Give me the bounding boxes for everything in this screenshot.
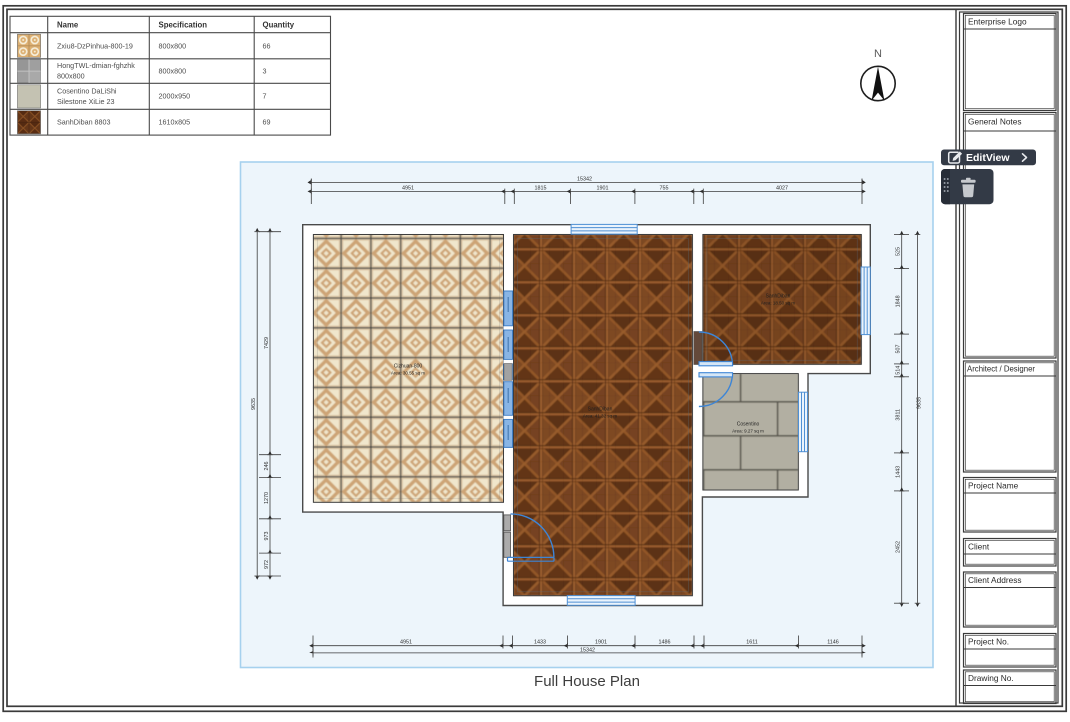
svg-text:9635: 9635 [917, 397, 923, 409]
svg-text:1815: 1815 [535, 185, 547, 191]
svg-text:800x800: 800x800 [57, 72, 85, 81]
svg-text:Drawing No.: Drawing No. [968, 673, 1014, 683]
svg-text:4951: 4951 [400, 640, 412, 646]
svg-text:2000x950: 2000x950 [159, 92, 191, 101]
svg-text:1848: 1848 [896, 295, 902, 307]
svg-text:Area: 41.32 sq m: Area: 41.32 sq m [583, 414, 618, 419]
svg-text:Architect / Designer: Architect / Designer [967, 365, 1035, 374]
svg-text:525: 525 [896, 247, 902, 256]
svg-text:Enterprise Logo: Enterprise Logo [968, 17, 1027, 27]
svg-text:Area: 9.27 sq m: Area: 9.27 sq m [732, 429, 764, 434]
svg-text:973: 973 [264, 532, 270, 541]
svg-text:1433: 1433 [534, 640, 546, 646]
svg-text:Project No.: Project No. [968, 637, 1009, 647]
svg-text:800x800: 800x800 [159, 42, 187, 51]
svg-text:1611: 1611 [746, 640, 758, 646]
svg-text:Area: 18.50 sq m: Area: 18.50 sq m [761, 301, 796, 306]
svg-text:SanhDiban: SanhDiban [766, 294, 791, 300]
svg-text:Specification: Specification [159, 20, 208, 29]
svg-text:Full House Plan: Full House Plan [534, 673, 640, 690]
svg-text:1146: 1146 [827, 640, 839, 646]
svg-text:1270: 1270 [264, 492, 270, 504]
svg-text:1443: 1443 [896, 466, 902, 478]
svg-text:Cosentino DaLiShi: Cosentino DaLiShi [57, 87, 117, 96]
svg-text:Zxiu8-DzPinhua-800-19: Zxiu8-DzPinhua-800-19 [57, 42, 133, 51]
svg-text:755: 755 [660, 185, 669, 191]
svg-text:800x800: 800x800 [159, 67, 187, 76]
svg-text:3: 3 [263, 67, 267, 76]
svg-text:Area: 30.55 sq m: Area: 30.55 sq m [391, 371, 426, 376]
svg-text:7429: 7429 [264, 337, 270, 349]
svg-text:66: 66 [263, 42, 271, 51]
svg-text:2452: 2452 [896, 541, 902, 553]
svg-text:EditView: EditView [966, 152, 1010, 164]
svg-text:15342: 15342 [580, 647, 595, 653]
svg-text:69: 69 [263, 118, 271, 127]
svg-text:Client Address: Client Address [968, 575, 1022, 585]
svg-text:15342: 15342 [577, 176, 592, 182]
svg-text:507: 507 [896, 345, 902, 354]
svg-text:Quantity: Quantity [263, 20, 295, 29]
svg-text:1901: 1901 [597, 185, 609, 191]
svg-text:Name: Name [57, 20, 79, 29]
svg-text:3811: 3811 [896, 409, 902, 421]
svg-text:1901: 1901 [595, 640, 607, 646]
svg-text:514: 514 [896, 366, 902, 375]
svg-text:1486: 1486 [659, 640, 671, 646]
svg-text:Cizhuan-800: Cizhuan-800 [394, 364, 423, 370]
svg-text:4951: 4951 [402, 185, 414, 191]
svg-text:N: N [874, 48, 882, 60]
svg-text:972: 972 [264, 560, 270, 569]
svg-text:1610x805: 1610x805 [159, 118, 191, 127]
svg-text:Client: Client [968, 542, 990, 552]
svg-text:General Notes: General Notes [968, 117, 1022, 127]
svg-text:SanhDiban 8803: SanhDiban 8803 [57, 118, 111, 127]
svg-text:4027: 4027 [776, 185, 788, 191]
svg-text:HongTWL-dmian-fghzhk: HongTWL-dmian-fghzhk [57, 61, 135, 70]
svg-text:Project Name: Project Name [968, 481, 1019, 491]
svg-text:7: 7 [263, 92, 267, 101]
svg-text:9635: 9635 [251, 398, 257, 410]
svg-text:246: 246 [264, 462, 270, 471]
svg-text:SanhDiban: SanhDiban [588, 407, 613, 413]
svg-text:Silestone XiLie 23: Silestone XiLie 23 [57, 97, 115, 106]
svg-text:Cosentino: Cosentino [737, 422, 760, 428]
